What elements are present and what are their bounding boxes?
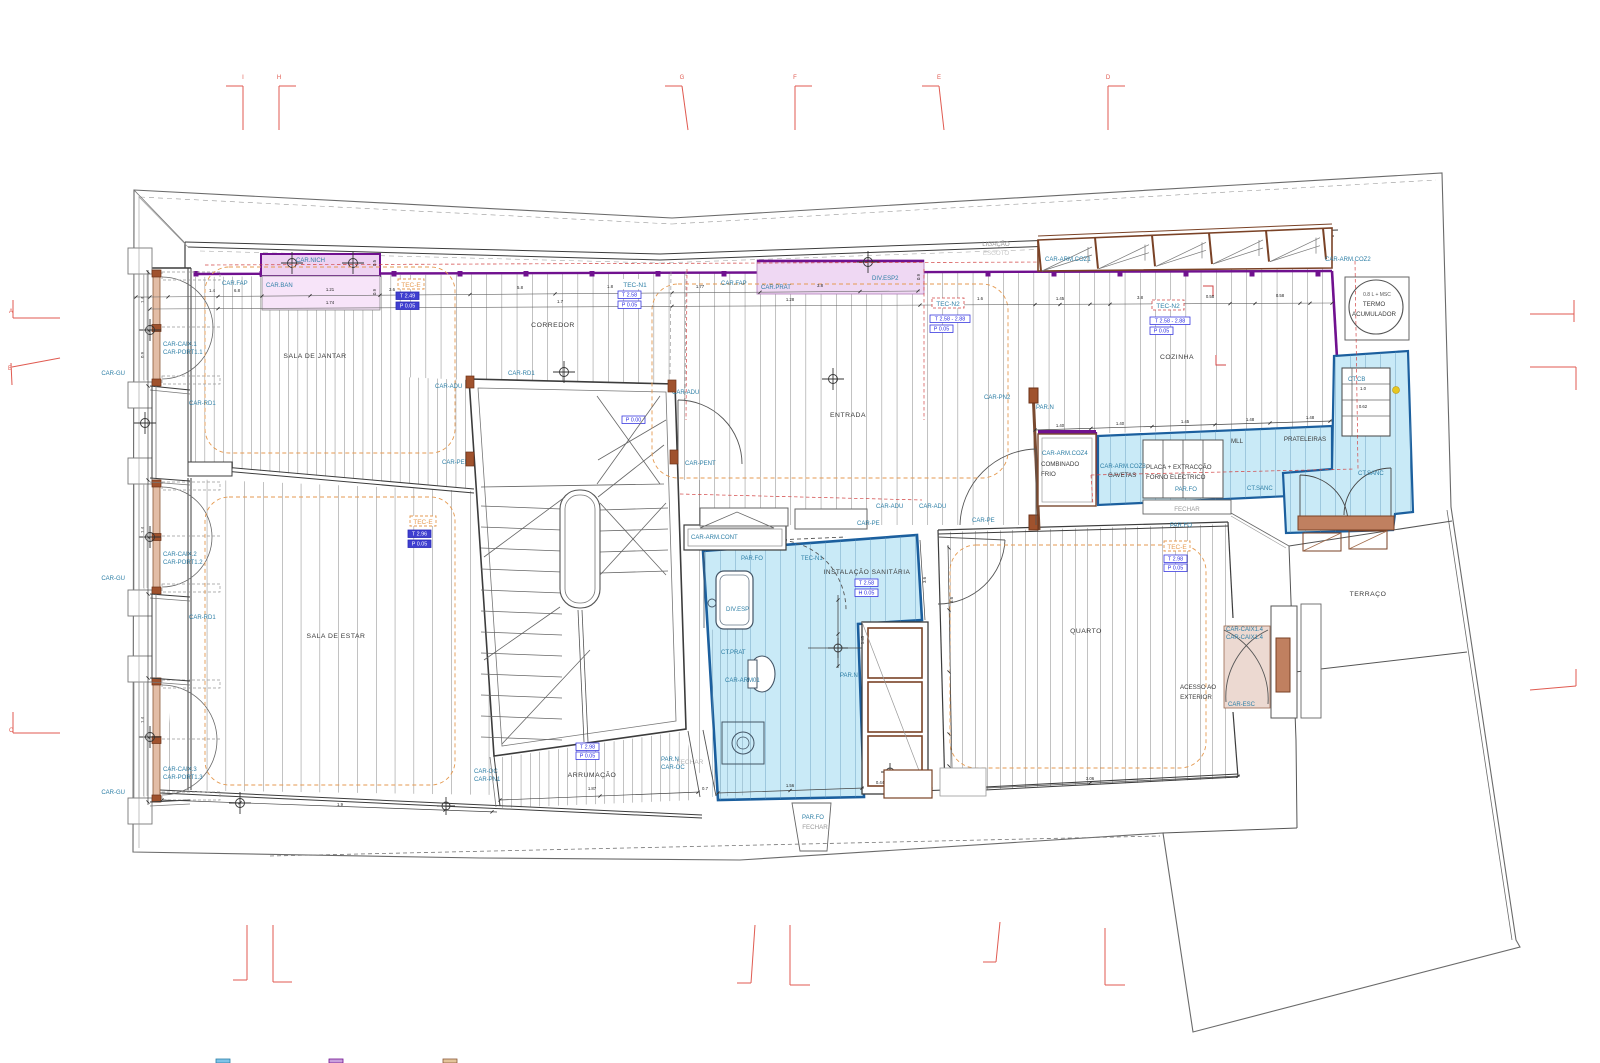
svg-text:TEC-E: TEC-E xyxy=(413,519,433,526)
svg-text:T 2.58 - 2.88: T 2.58 - 2.88 xyxy=(1155,319,1185,325)
svg-text:P 0.05: P 0.05 xyxy=(934,327,950,333)
svg-text:T 2.98: T 2.98 xyxy=(1168,557,1183,563)
svg-text:MLL: MLL xyxy=(1231,438,1244,445)
svg-text:PRATELEIRAS: PRATELEIRAS xyxy=(1284,436,1326,443)
svg-text:CAR-OC: CAR-OC xyxy=(474,769,498,775)
svg-text:1.4: 1.4 xyxy=(209,288,216,293)
svg-text:CAR.FAP: CAR.FAP xyxy=(721,281,747,287)
svg-text:3.8: 3.8 xyxy=(1137,295,1144,300)
svg-text:PAR.N: PAR.N xyxy=(1036,405,1054,411)
svg-text:EXTERIOR: EXTERIOR xyxy=(1180,694,1212,701)
svg-text:3.6: 3.6 xyxy=(949,596,954,603)
svg-text:PAR.FO: PAR.FO xyxy=(802,815,824,821)
svg-text:1.45: 1.45 xyxy=(1181,419,1190,424)
svg-text:3.8: 3.8 xyxy=(817,283,824,288)
svg-text:CAR-CAIX.1: CAR-CAIX.1 xyxy=(163,342,197,348)
svg-text:CAR.FAP: CAR.FAP xyxy=(222,281,248,287)
svg-text:CAR-ADU: CAR-ADU xyxy=(919,504,946,510)
svg-text:ACUMULADOR: ACUMULADOR xyxy=(1352,311,1397,318)
svg-text:PAR.N: PAR.N xyxy=(661,757,679,763)
svg-text:0.7: 0.7 xyxy=(702,786,709,791)
svg-text:1.21: 1.21 xyxy=(326,287,335,292)
svg-text:P 0.05: P 0.05 xyxy=(412,542,428,548)
svg-text:QUARTO: QUARTO xyxy=(1070,628,1102,635)
svg-text:1.45: 1.45 xyxy=(860,635,865,644)
svg-text:1.87: 1.87 xyxy=(588,786,597,791)
svg-text:FECHAR: FECHAR xyxy=(1174,506,1200,513)
svg-text:TERRAÇO: TERRAÇO xyxy=(1350,591,1387,598)
svg-text:ENTRADA: ENTRADA xyxy=(830,412,866,419)
svg-text:H: H xyxy=(277,75,281,81)
svg-text:CAR-PE: CAR-PE xyxy=(972,518,995,524)
svg-text:0.58: 0.58 xyxy=(1276,293,1285,298)
svg-text:CAR-ADU: CAR-ADU xyxy=(435,384,462,390)
svg-text:FRIO: FRIO xyxy=(1041,471,1056,478)
svg-text:0.8 L + MSC: 0.8 L + MSC xyxy=(1363,292,1391,298)
svg-text:3.6: 3.6 xyxy=(389,287,396,292)
svg-text:SALA DE JANTAR: SALA DE JANTAR xyxy=(283,353,346,360)
svg-text:CAR-ARM.COZ2: CAR-ARM.COZ2 xyxy=(1325,257,1371,263)
svg-text:CAR-ESC: CAR-ESC xyxy=(1228,702,1256,708)
svg-text:CAR-ARM.CONT: CAR-ARM.CONT xyxy=(691,535,738,541)
svg-text:CAR-PORT1.1: CAR-PORT1.1 xyxy=(163,350,203,356)
svg-text:PAR.N: PAR.N xyxy=(840,673,858,679)
svg-text:CAR-ARM.COZ4: CAR-ARM.COZ4 xyxy=(1042,451,1088,457)
svg-text:1.28: 1.28 xyxy=(786,297,795,302)
svg-text:P 0.05: P 0.05 xyxy=(580,754,596,760)
svg-text:CT.CB: CT.CB xyxy=(1348,377,1365,383)
svg-text:CORREDOR: CORREDOR xyxy=(531,322,575,329)
svg-text:CAR-PENT: CAR-PENT xyxy=(685,461,716,467)
svg-text:ACESSO AO: ACESSO AO xyxy=(1180,684,1216,691)
svg-text:CAR-ARM.COZ3: CAR-ARM.COZ3 xyxy=(1100,464,1146,470)
svg-text:CAR-RD1: CAR-RD1 xyxy=(189,615,216,621)
svg-text:TEC-N1: TEC-N1 xyxy=(623,282,647,289)
svg-text:CAR-OC: CAR-OC xyxy=(661,765,685,771)
svg-text:DIV.ESP2: DIV.ESP2 xyxy=(872,276,899,282)
svg-text:T 2.58: T 2.58 xyxy=(622,293,637,299)
svg-text:P 0.05: P 0.05 xyxy=(1154,329,1170,335)
svg-text:CAR-GU: CAR-GU xyxy=(101,576,125,582)
svg-text:P 0.05: P 0.05 xyxy=(622,303,638,309)
svg-text:DIV.ESP: DIV.ESP xyxy=(726,607,749,613)
svg-text:ESGOTO: ESGOTO xyxy=(983,250,1010,257)
svg-text:1.77: 1.77 xyxy=(696,284,705,289)
svg-text:CAR-GU: CAR-GU xyxy=(101,790,125,796)
svg-text:PAR.FO: PAR.FO xyxy=(1170,523,1192,529)
svg-text:TEC-E: TEC-E xyxy=(1167,544,1187,551)
svg-text:PAR.FO: PAR.FO xyxy=(1175,487,1197,493)
svg-text:P 0.05: P 0.05 xyxy=(1168,566,1184,572)
svg-text:0.9: 0.9 xyxy=(140,351,145,358)
svg-text:CAR-CAIX.2: CAR-CAIX.2 xyxy=(163,552,197,558)
svg-text:TEC-N2: TEC-N2 xyxy=(936,301,960,308)
svg-text:P 0.05: P 0.05 xyxy=(400,304,416,310)
svg-text:TEC-N2: TEC-N2 xyxy=(1156,303,1180,310)
svg-text:CAR-PORT1.2: CAR-PORT1.2 xyxy=(163,560,203,566)
svg-text:1.56: 1.56 xyxy=(786,783,795,788)
svg-text:CAR-ARM01: CAR-ARM01 xyxy=(725,678,760,684)
svg-text:CAR-RD1: CAR-RD1 xyxy=(189,401,216,407)
svg-text:T 2.58 - 2.88: T 2.58 - 2.88 xyxy=(935,317,965,323)
svg-text:ARRUMAÇÃO: ARRUMAÇÃO xyxy=(568,770,617,779)
svg-text:TEC-N1: TEC-N1 xyxy=(801,556,823,562)
svg-text:GAVETAS: GAVETAS xyxy=(1108,472,1136,479)
svg-text:A: A xyxy=(9,309,13,315)
svg-text:CAR-CAIX1.4: CAR-CAIX1.4 xyxy=(1226,627,1264,633)
svg-text:CT.PRAT: CT.PRAT xyxy=(721,650,746,656)
svg-text:CT.SANC: CT.SANC xyxy=(1358,471,1384,477)
svg-text:CT.SANC: CT.SANC xyxy=(1247,486,1273,492)
svg-text:CAR-PORT1.3: CAR-PORT1.3 xyxy=(163,775,203,781)
svg-text:CAR.NICH: CAR.NICH xyxy=(296,258,325,264)
svg-text:CAR-ADU: CAR-ADU xyxy=(876,504,903,510)
svg-text:PAR.FO: PAR.FO xyxy=(741,556,763,562)
svg-text:6.8: 6.8 xyxy=(234,288,241,293)
svg-text:CAR-PN2: CAR-PN2 xyxy=(984,395,1011,401)
svg-text:T 2.98: T 2.98 xyxy=(580,745,595,751)
svg-text:INSTALAÇÃO SANITÁRIA: INSTALAÇÃO SANITÁRIA xyxy=(824,567,911,576)
svg-text:1.4: 1.4 xyxy=(140,296,145,303)
svg-text:TEC-E: TEC-E xyxy=(401,282,421,289)
svg-text:CAR-ARM.COZ1: CAR-ARM.COZ1 xyxy=(1045,257,1091,263)
svg-text:3.06: 3.06 xyxy=(1086,776,1095,781)
svg-text:CAR-PE: CAR-PE xyxy=(857,521,880,527)
svg-text:FECHAR: FECHAR xyxy=(802,824,828,831)
svg-text:COMBINADO: COMBINADO xyxy=(1041,461,1079,468)
svg-text:CAR-GU: CAR-GU xyxy=(101,371,125,377)
svg-text:1.48: 1.48 xyxy=(1246,417,1255,422)
svg-text:1.4: 1.4 xyxy=(140,526,145,533)
svg-text:1.74: 1.74 xyxy=(326,300,335,305)
svg-text:SALA DE ESTAR: SALA DE ESTAR xyxy=(307,633,366,640)
svg-text:1.40: 1.40 xyxy=(1056,423,1065,428)
svg-text:COZINHA: COZINHA xyxy=(1160,354,1194,361)
svg-text:5.8: 5.8 xyxy=(517,285,524,290)
svg-text:P 0.00: P 0.00 xyxy=(626,418,642,424)
svg-text:CAR-RD1: CAR-RD1 xyxy=(508,371,535,377)
svg-text:D: D xyxy=(1106,75,1111,81)
svg-text:3.6: 3.6 xyxy=(922,576,927,583)
svg-text:T 2.96: T 2.96 xyxy=(412,532,427,538)
svg-text:0.9: 0.9 xyxy=(916,273,921,280)
svg-text:0.58: 0.58 xyxy=(1206,294,1215,299)
svg-text:T 2.49: T 2.49 xyxy=(400,294,415,300)
svg-text:1.0: 1.0 xyxy=(1360,386,1367,391)
svg-text:LIGAÇÃO: LIGAÇÃO xyxy=(982,241,1010,248)
svg-text:PLACA + EXTRACÇÃO: PLACA + EXTRACÇÃO xyxy=(1146,464,1212,471)
svg-text:FORNO ELÉCTRICO: FORNO ELÉCTRICO xyxy=(1146,474,1206,481)
svg-text:1.45: 1.45 xyxy=(1056,296,1065,301)
svg-text:H 0.05: H 0.05 xyxy=(859,591,875,597)
svg-text:1.9: 1.9 xyxy=(337,802,344,807)
svg-text:1.40: 1.40 xyxy=(1116,421,1125,426)
svg-text:CAR-CAIX.3: CAR-CAIX.3 xyxy=(163,767,197,773)
svg-text:1.7: 1.7 xyxy=(557,299,564,304)
svg-text:0.5: 0.5 xyxy=(372,259,377,266)
svg-text:E: E xyxy=(937,75,941,81)
svg-text:0.62: 0.62 xyxy=(1359,404,1368,409)
svg-text:1.4: 1.4 xyxy=(140,716,145,723)
svg-text:CAR-CAIX1.4: CAR-CAIX1.4 xyxy=(1226,635,1264,641)
svg-text:CAR.PRAT: CAR.PRAT xyxy=(761,285,791,291)
svg-text:1.8: 1.8 xyxy=(607,284,614,289)
svg-text:T 2.58: T 2.58 xyxy=(859,581,874,587)
svg-text:F: F xyxy=(793,75,797,81)
svg-text:CAR.BAN: CAR.BAN xyxy=(266,283,293,289)
svg-text:G: G xyxy=(680,75,685,81)
svg-text:1.48: 1.48 xyxy=(1306,415,1315,420)
svg-text:0.9: 0.9 xyxy=(372,288,377,295)
svg-text:TERMO: TERMO xyxy=(1363,301,1386,308)
svg-text:1.6: 1.6 xyxy=(977,296,984,301)
